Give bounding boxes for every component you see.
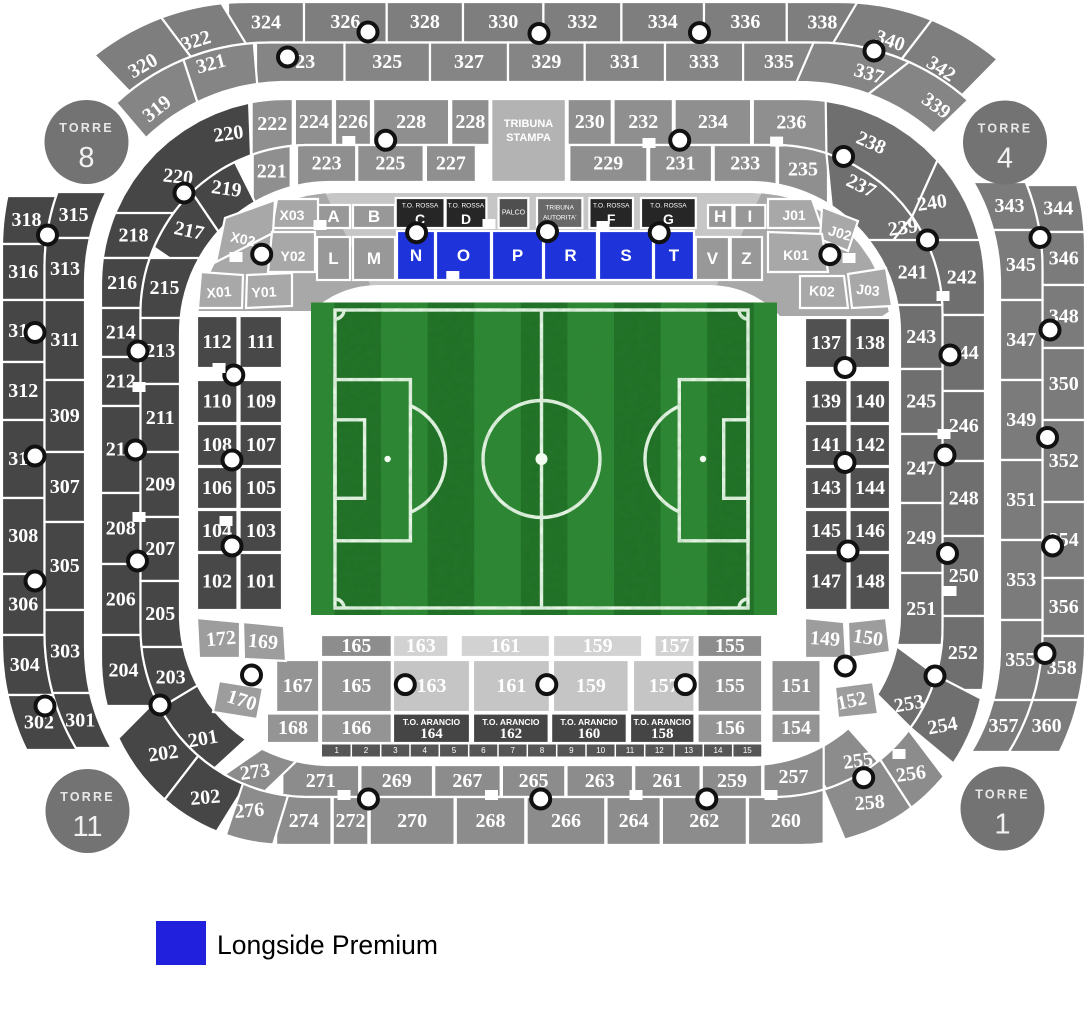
svg-text:306: 306 (8, 594, 38, 616)
svg-text:J03: J03 (856, 281, 881, 299)
svg-text:164: 164 (420, 726, 443, 742)
svg-text:220: 220 (212, 121, 245, 147)
svg-text:246: 246 (949, 415, 979, 437)
svg-text:234: 234 (698, 111, 728, 133)
svg-text:213: 213 (145, 340, 175, 362)
svg-text:O: O (457, 246, 470, 265)
svg-text:312: 312 (8, 380, 38, 402)
svg-text:305: 305 (50, 555, 80, 577)
svg-text:2: 2 (364, 746, 369, 755)
svg-text:102: 102 (202, 571, 232, 593)
svg-text:K02: K02 (809, 282, 836, 299)
svg-text:138: 138 (855, 332, 885, 354)
svg-text:256: 256 (895, 761, 928, 787)
svg-text:218: 218 (119, 225, 149, 247)
svg-text:140: 140 (855, 391, 885, 413)
svg-text:263: 263 (585, 770, 615, 792)
svg-text:8: 8 (78, 142, 94, 174)
svg-text:S: S (620, 246, 631, 265)
svg-text:X03: X03 (280, 207, 305, 223)
svg-text:347: 347 (1006, 329, 1036, 351)
svg-text:4: 4 (997, 143, 1013, 175)
svg-text:TORRE: TORRE (59, 121, 114, 135)
svg-text:273: 273 (239, 759, 272, 785)
svg-text:268: 268 (476, 810, 506, 832)
svg-text:206: 206 (106, 589, 136, 611)
svg-text:215: 215 (150, 277, 180, 299)
svg-text:249: 249 (906, 527, 936, 549)
svg-text:12: 12 (655, 746, 664, 755)
svg-text:251: 251 (906, 598, 936, 620)
svg-text:8: 8 (540, 746, 545, 755)
svg-text:252: 252 (948, 642, 978, 664)
svg-text:Z: Z (741, 249, 751, 268)
svg-text:I: I (748, 207, 753, 226)
svg-text:308: 308 (8, 525, 38, 547)
svg-text:K01: K01 (783, 247, 809, 263)
svg-text:261: 261 (652, 770, 682, 792)
svg-text:149: 149 (809, 627, 840, 651)
svg-text:208: 208 (106, 518, 136, 540)
svg-text:141: 141 (811, 434, 841, 456)
svg-text:107: 107 (246, 434, 276, 456)
svg-text:202: 202 (189, 785, 221, 810)
svg-text:231: 231 (666, 153, 696, 175)
svg-text:331: 331 (610, 51, 640, 73)
svg-text:318: 318 (12, 209, 42, 231)
svg-text:228: 228 (396, 111, 426, 133)
svg-text:111: 111 (247, 331, 275, 353)
svg-text:357: 357 (989, 715, 1019, 737)
svg-text:146: 146 (855, 520, 885, 542)
svg-text:X01: X01 (206, 283, 232, 301)
svg-text:259: 259 (717, 770, 747, 792)
svg-text:147: 147 (811, 571, 841, 593)
svg-text:10: 10 (596, 746, 605, 755)
svg-text:D: D (461, 211, 471, 227)
svg-text:5: 5 (452, 746, 457, 755)
svg-text:239: 239 (887, 215, 920, 241)
svg-text:STAMPA: STAMPA (506, 132, 551, 144)
svg-text:223: 223 (312, 153, 342, 175)
svg-text:336: 336 (730, 11, 760, 33)
svg-text:224: 224 (299, 111, 329, 133)
svg-text:236: 236 (776, 111, 806, 133)
svg-text:155: 155 (715, 675, 745, 697)
svg-text:209: 209 (145, 474, 175, 496)
svg-text:235: 235 (788, 159, 818, 181)
svg-text:162: 162 (500, 726, 523, 742)
svg-text:159: 159 (576, 675, 606, 697)
svg-text:232: 232 (628, 111, 658, 133)
svg-text:328: 328 (410, 11, 440, 33)
svg-text:260: 260 (771, 810, 801, 832)
svg-text:T.O. ROSSA: T.O. ROSSA (593, 203, 630, 210)
svg-text:154: 154 (781, 717, 811, 739)
svg-text:158: 158 (651, 726, 674, 742)
svg-text:14: 14 (714, 746, 723, 755)
svg-text:205: 205 (145, 603, 175, 625)
svg-text:172: 172 (205, 627, 237, 652)
svg-text:351: 351 (1006, 489, 1036, 511)
svg-text:168: 168 (278, 717, 308, 739)
svg-text:264: 264 (619, 810, 649, 832)
svg-text:245: 245 (906, 391, 936, 413)
svg-text:Y01: Y01 (251, 283, 277, 300)
svg-text:163: 163 (406, 635, 436, 657)
svg-text:356: 356 (1049, 596, 1079, 618)
svg-text:316: 316 (8, 261, 38, 283)
svg-text:15: 15 (743, 746, 752, 755)
svg-text:105: 105 (246, 477, 276, 499)
svg-text:352: 352 (1049, 450, 1079, 472)
svg-text:225: 225 (375, 153, 405, 175)
svg-text:270: 270 (397, 810, 427, 832)
svg-text:327: 327 (454, 51, 484, 73)
svg-text:159: 159 (583, 635, 613, 657)
svg-text:303: 303 (50, 641, 80, 663)
svg-text:335: 335 (764, 51, 794, 73)
svg-text:1: 1 (334, 746, 339, 755)
svg-text:110: 110 (203, 391, 232, 413)
svg-text:161: 161 (490, 635, 520, 657)
svg-text:11: 11 (626, 746, 635, 755)
svg-text:11: 11 (72, 811, 102, 843)
svg-text:211: 211 (146, 407, 175, 429)
svg-text:219: 219 (210, 176, 243, 202)
svg-text:343: 343 (995, 195, 1025, 217)
svg-text:TORRE: TORRE (975, 788, 1030, 802)
svg-text:355: 355 (1005, 649, 1035, 671)
svg-text:PALCO: PALCO (502, 210, 526, 217)
svg-text:9: 9 (569, 746, 574, 755)
svg-text:333: 333 (689, 51, 719, 73)
svg-text:R: R (564, 246, 576, 265)
svg-text:247: 247 (906, 458, 936, 480)
svg-text:324: 324 (251, 11, 281, 33)
svg-text:P: P (512, 246, 523, 265)
svg-text:106: 106 (202, 477, 232, 499)
svg-text:315: 315 (59, 204, 89, 226)
svg-text:157: 157 (660, 635, 690, 657)
svg-text:103: 103 (246, 520, 276, 542)
svg-text:227: 227 (436, 153, 466, 175)
svg-text:169: 169 (247, 630, 279, 655)
svg-text:6: 6 (481, 746, 486, 755)
svg-text:161: 161 (496, 675, 526, 697)
svg-text:272: 272 (336, 810, 366, 832)
svg-text:137: 137 (811, 332, 841, 354)
svg-text:212: 212 (106, 371, 136, 393)
svg-text:242: 242 (947, 267, 977, 289)
svg-text:329: 329 (531, 51, 561, 73)
svg-text:148: 148 (855, 571, 885, 593)
svg-text:304: 304 (10, 654, 40, 676)
svg-text:332: 332 (567, 11, 597, 33)
svg-text:165: 165 (341, 635, 371, 657)
svg-text:349: 349 (1006, 409, 1036, 431)
svg-text:276: 276 (233, 799, 265, 824)
svg-text:334: 334 (648, 11, 678, 33)
svg-text:1: 1 (994, 809, 1010, 841)
svg-text:TORRE: TORRE (978, 122, 1033, 136)
svg-text:204: 204 (109, 660, 139, 682)
svg-text:109: 109 (246, 391, 276, 413)
svg-text:269: 269 (382, 770, 412, 792)
svg-text:M: M (367, 249, 381, 268)
svg-text:T.O. ROSSA: T.O. ROSSA (448, 203, 485, 210)
svg-text:207: 207 (145, 538, 175, 560)
svg-text:203: 203 (156, 667, 186, 689)
svg-text:155: 155 (715, 635, 745, 657)
svg-text:A: A (327, 207, 339, 226)
svg-text:326: 326 (330, 11, 360, 33)
svg-text:262: 262 (689, 810, 719, 832)
svg-text:309: 309 (50, 405, 80, 427)
svg-text:345: 345 (1006, 254, 1036, 276)
svg-text:353: 353 (1006, 569, 1036, 591)
svg-text:N: N (410, 246, 422, 265)
svg-text:266: 266 (551, 810, 581, 832)
svg-text:Y02: Y02 (281, 248, 306, 264)
svg-text:241: 241 (898, 262, 928, 284)
svg-text:T.O. ROSSA: T.O. ROSSA (402, 203, 439, 210)
svg-text:L: L (328, 249, 338, 268)
svg-text:202: 202 (147, 741, 180, 767)
svg-text:257: 257 (779, 766, 809, 788)
svg-text:311: 311 (50, 329, 79, 351)
svg-text:145: 145 (811, 520, 841, 542)
svg-text:160: 160 (578, 726, 601, 742)
svg-text:163: 163 (417, 675, 447, 697)
svg-text:221: 221 (257, 160, 287, 182)
svg-text:301: 301 (65, 710, 95, 732)
svg-text:250: 250 (949, 565, 979, 587)
svg-text:350: 350 (1049, 373, 1079, 395)
svg-text:V: V (707, 249, 719, 268)
svg-text:243: 243 (906, 326, 936, 348)
svg-text:222: 222 (257, 113, 287, 135)
svg-text:3: 3 (393, 746, 398, 755)
svg-text:H: H (714, 207, 726, 226)
svg-text:4: 4 (422, 746, 427, 755)
svg-text:271: 271 (306, 770, 336, 792)
svg-text:226: 226 (338, 111, 368, 133)
svg-text:240: 240 (916, 190, 949, 216)
svg-text:TORRE: TORRE (60, 790, 115, 804)
svg-text:150: 150 (852, 625, 885, 651)
svg-text:TRIBUNA: TRIBUNA (504, 118, 554, 130)
svg-text:267: 267 (452, 770, 482, 792)
svg-text:233: 233 (730, 153, 760, 175)
svg-text:7: 7 (510, 746, 515, 755)
svg-text:143: 143 (811, 477, 841, 499)
svg-text:216: 216 (107, 272, 137, 294)
svg-text:TRIBUNA: TRIBUNA (545, 205, 574, 212)
svg-text:258: 258 (854, 791, 886, 816)
svg-text:165: 165 (341, 675, 371, 697)
svg-text:338: 338 (807, 11, 837, 33)
svg-text:228: 228 (455, 111, 485, 133)
svg-text:346: 346 (1049, 248, 1079, 270)
svg-text:167: 167 (283, 675, 313, 697)
svg-text:144: 144 (855, 477, 885, 499)
svg-text:T: T (669, 246, 680, 265)
svg-text:J01: J01 (782, 207, 806, 223)
svg-text:156: 156 (715, 717, 745, 739)
svg-text:13: 13 (684, 746, 693, 755)
svg-text:248: 248 (949, 488, 979, 510)
svg-text:313: 313 (50, 258, 80, 280)
svg-text:307: 307 (50, 476, 80, 498)
svg-text:Longside Premium: Longside Premium (217, 930, 438, 960)
svg-text:139: 139 (811, 391, 841, 413)
svg-text:B: B (368, 207, 380, 226)
svg-text:330: 330 (488, 11, 518, 33)
svg-text:151: 151 (781, 675, 811, 697)
svg-text:230: 230 (575, 111, 605, 133)
svg-text:344: 344 (1043, 198, 1073, 220)
svg-text:142: 142 (855, 434, 885, 456)
svg-text:214: 214 (106, 322, 136, 344)
svg-text:101: 101 (246, 571, 276, 593)
svg-text:325: 325 (372, 51, 402, 73)
svg-text:360: 360 (1032, 715, 1062, 737)
svg-text:274: 274 (289, 810, 319, 832)
svg-text:T.O. ROSSA: T.O. ROSSA (650, 203, 687, 210)
svg-text:166: 166 (341, 717, 371, 739)
svg-text:229: 229 (593, 153, 623, 175)
svg-text:112: 112 (203, 331, 232, 353)
